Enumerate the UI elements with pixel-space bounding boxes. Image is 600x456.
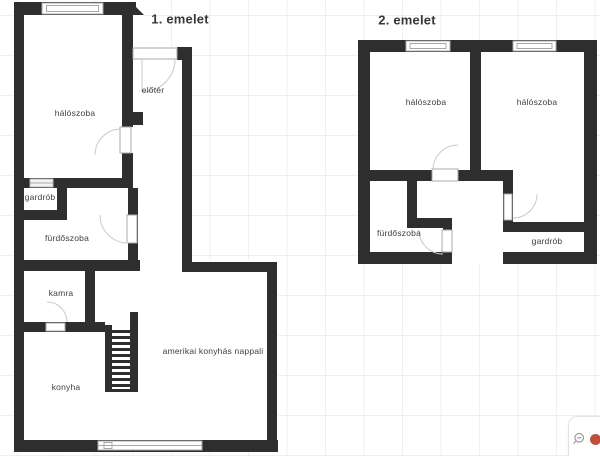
room-label-bedroom2a: hálószoba <box>406 97 447 107</box>
room-label-pantry: kamra <box>49 288 74 298</box>
room-label-bathroom2: fürdőszoba <box>377 228 421 238</box>
floorplan-drawing <box>0 0 600 456</box>
window-bedroom-right <box>513 41 556 51</box>
room-label-living: amerikai konyhás nappali <box>163 346 264 356</box>
room-label-bedroom2b: hálószoba <box>517 97 558 107</box>
room-label-wardrobe2: gardrób <box>532 236 563 246</box>
floor1-title: 1. emelet <box>151 12 208 27</box>
room-label-kitchen: konyha <box>52 382 81 392</box>
magnifier-minus-icon <box>573 432 587 446</box>
room-label-hall: előtér <box>142 85 164 95</box>
zoom-out-button[interactable] <box>573 432 587 446</box>
window-bottom <box>98 441 202 450</box>
room-label-bedroom1: hálószoba <box>55 108 96 118</box>
map-marker-icon[interactable] <box>590 434 600 445</box>
floorplan-canvas: 1. emelet hálószoba előtér gardrób fürdő… <box>0 0 600 456</box>
window-bedroom-left <box>406 41 450 51</box>
room-label-wardrobe1: gardrób <box>25 192 56 202</box>
zoom-controls <box>568 416 600 456</box>
wardrobe-window <box>30 179 53 187</box>
window-top <box>42 3 103 14</box>
room-label-bathroom1: fürdőszoba <box>45 233 89 243</box>
floor2-title: 2. emelet <box>378 13 435 28</box>
